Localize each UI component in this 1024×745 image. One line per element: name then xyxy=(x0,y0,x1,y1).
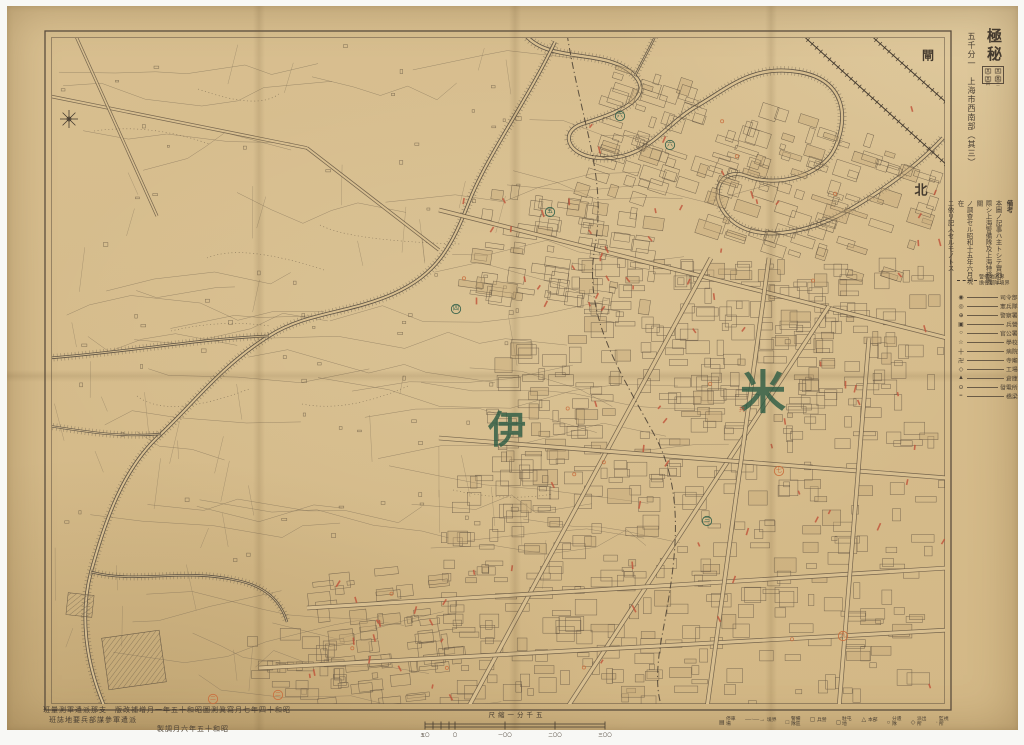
bottom-legend-item: ◻駐屯地 xyxy=(836,717,855,729)
side-legend-row: ▣兵營 xyxy=(957,321,1019,328)
legend-leader xyxy=(967,378,1004,379)
legend-symbol: ◎ xyxy=(957,303,965,310)
legend-symbol: ◇ xyxy=(911,720,916,727)
legend-label: 分遣隊 xyxy=(892,717,902,727)
legend-symbol: —·—→ xyxy=(745,717,765,724)
legend-label: 本部 xyxy=(868,718,878,723)
imprint-line2: 班誌地要兵部謀參軍遣派 xyxy=(49,715,137,725)
map-sheet: 極秘 五千分一 上海市西南部（其三） 其二 其一 其四 其三 備考 本圖ノ記事ハ… xyxy=(7,6,1018,730)
legend-label: 警察署 xyxy=(1000,311,1018,320)
legend-symbol: ◉ xyxy=(957,294,965,301)
legend-leader xyxy=(967,306,998,307)
bottom-legend-item: ▢兵營 xyxy=(810,717,830,724)
legend-label: 工場 xyxy=(1006,365,1018,374)
bottom-legend-item: ○分遣隊 xyxy=(887,717,905,729)
side-legend-row: 卍寺廟 xyxy=(957,357,1019,364)
legend-symbol: ○ xyxy=(887,720,891,727)
legend-leader xyxy=(967,360,1004,361)
legend-leader xyxy=(967,387,998,388)
boundary-label-bottom: 擔任部隊境界 xyxy=(979,281,1010,287)
legend-symbol: ☆ xyxy=(957,339,965,346)
side-legend-row: ○官公署 xyxy=(957,330,1019,337)
legend-label: 橋梁 xyxy=(1006,392,1018,401)
legend-symbol: □ xyxy=(786,720,790,727)
legend-leader xyxy=(967,351,1004,352)
legend-symbol: ◇ xyxy=(957,366,965,373)
legend-leader xyxy=(967,315,998,316)
legend-symbol: ○ xyxy=(957,330,965,336)
notes-line: ニ依リ記入セルモノトス xyxy=(945,200,954,286)
legend-leader xyxy=(967,396,1004,397)
legend-label: 病院 xyxy=(1006,347,1018,356)
legend-label: 學校 xyxy=(1006,338,1018,347)
imprint-line1: 班量測軍遣派那支 版改補增月一年五十和昭圖測眞寫月七年四十和昭 xyxy=(43,705,291,715)
legend-label: 兵營 xyxy=(817,718,827,723)
index-cell: 其二 xyxy=(985,69,991,74)
index-cell: 其一 xyxy=(995,69,1001,74)
legend-label: 監視所 xyxy=(939,717,949,727)
side-legend-row: ◎憲兵隊 xyxy=(957,303,1019,310)
side-legend-row: ◉司令部 xyxy=(957,294,1019,301)
legend-label: 停車場 xyxy=(726,717,736,727)
bottom-legend-item: ◇派出所 xyxy=(911,717,930,729)
side-legend-row: ☆學校 xyxy=(957,339,1019,346)
bottom-legend: ▤停車場—·—→境界□警備隊區▢兵營◻駐屯地△本部○分遣隊◇派出所·監視所 xyxy=(719,717,985,729)
index-cell-current: 其三 xyxy=(995,77,1001,82)
bottom-legend-item: ▤停車場 xyxy=(719,717,739,729)
legend-label: 官公署 xyxy=(1000,329,1018,338)
scanned-map-photo: 極秘 五千分一 上海市西南部（其三） 其二 其一 其四 其三 備考 本圖ノ記事ハ… xyxy=(0,0,1024,745)
side-legend-row: ▲倉庫 xyxy=(957,375,1019,382)
legend-leader xyxy=(967,333,998,334)
legend-label: 司令部 xyxy=(1000,293,1018,302)
legend-label: 警備隊區 xyxy=(791,717,801,727)
map-canvas xyxy=(7,6,1024,745)
legend-symbol: 十 xyxy=(957,347,965,356)
sheet-index-grid: 其二 其一 其四 其三 xyxy=(982,66,1004,84)
legend-symbol: 卍 xyxy=(957,356,965,365)
legend-symbol: ◻ xyxy=(836,720,841,727)
scale-label: 尺縮一分千五 xyxy=(475,709,559,719)
side-legend-row: ⊙發電所 xyxy=(957,384,1019,391)
side-legend-row: ⊕警察署 xyxy=(957,312,1019,319)
legend-label: 兵營 xyxy=(1006,320,1018,329)
legend-symbol: △ xyxy=(861,717,866,724)
legend-label: 境界 xyxy=(767,718,777,723)
bottom-legend-item: □警備隊區 xyxy=(786,717,804,729)
imprint-compiled: 製調月六年五十和昭 xyxy=(157,724,229,734)
index-cell: 其四 xyxy=(985,77,991,82)
bottom-legend-item: △本部 xyxy=(861,717,880,724)
side-legend: ◉司令部◎憲兵隊⊕警察署▣兵營○官公署☆學校十病院卍寺廟◇工場▲倉庫⊙發電所≡橋… xyxy=(957,294,1019,400)
legend-symbol: · xyxy=(936,720,938,727)
side-legend-row: ≡橋梁 xyxy=(957,393,1019,400)
side-legend-row: ◇工場 xyxy=(957,366,1019,373)
legend-label: 寺廟 xyxy=(1006,356,1018,365)
bottom-legend-item: —·—→境界 xyxy=(745,717,780,724)
legend-label: 駐屯地 xyxy=(842,717,852,727)
legend-symbol: ≡ xyxy=(957,393,965,399)
legend-symbol: ▲ xyxy=(957,375,965,381)
boundary-line-symbol xyxy=(957,280,977,281)
legend-leader xyxy=(967,297,998,298)
legend-symbol: ▢ xyxy=(810,717,816,724)
legend-label: 倉庫 xyxy=(1006,374,1018,383)
legend-label: 憲兵隊 xyxy=(1000,302,1018,311)
boundary-labels: 警備地區界 擔任部隊境界 xyxy=(979,275,1010,286)
legend-symbol: ⊙ xyxy=(957,384,965,391)
legend-leader xyxy=(967,369,1004,370)
legend-leader xyxy=(967,324,1004,325)
legend-leader xyxy=(967,342,1004,343)
legend-symbol: ▤ xyxy=(719,720,725,727)
legend-symbol: ⊕ xyxy=(957,312,965,319)
side-legend-row: 十病院 xyxy=(957,348,1019,355)
legend-label: 發電所 xyxy=(1000,383,1018,392)
boundary-legend: 警備地區界 擔任部隊境界 xyxy=(957,274,1019,287)
legend-symbol: ▣ xyxy=(957,321,965,328)
bottom-legend-item: ·監視所 xyxy=(936,717,953,729)
legend-label: 派出所 xyxy=(917,717,927,727)
